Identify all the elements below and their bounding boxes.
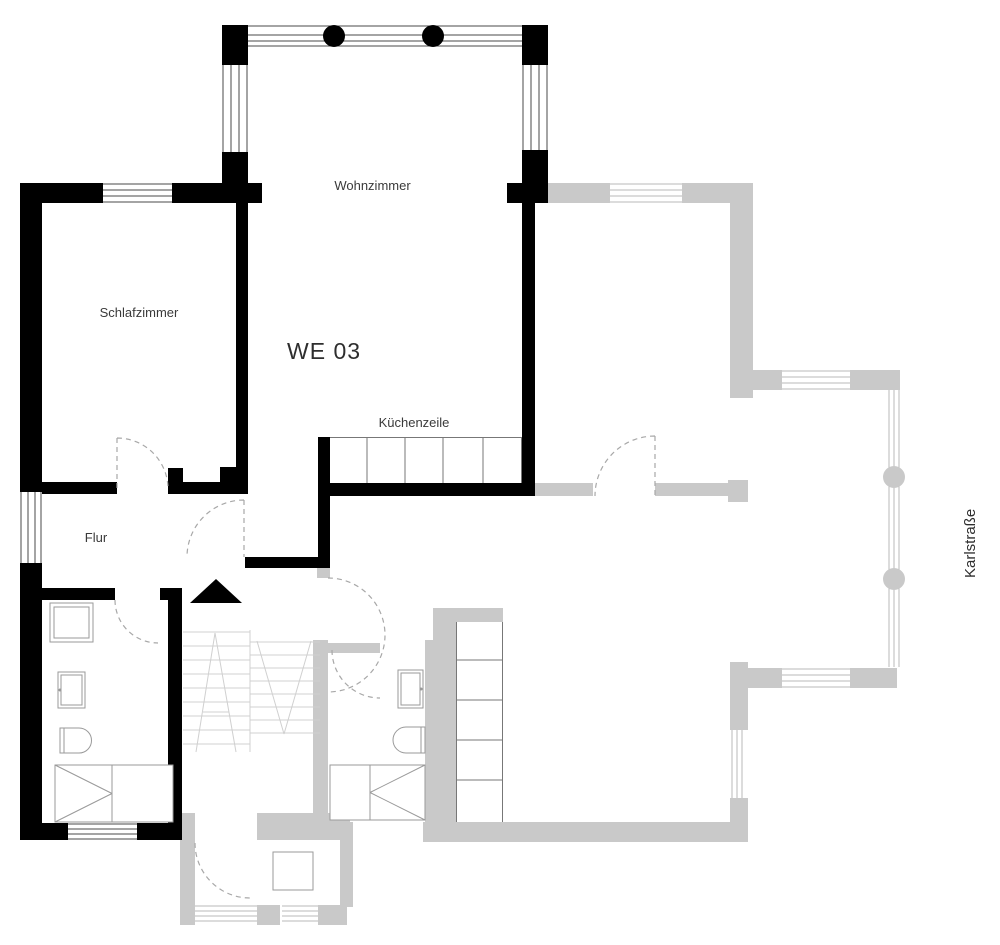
kitchen-counter [330, 438, 522, 484]
floor-plan: Wohnzimmer Schlafzimmer WE 03 Küchenzeil… [0, 0, 1000, 945]
unit-label: WE 03 [287, 339, 361, 364]
sink [58, 672, 85, 708]
toilet [60, 728, 92, 753]
unit-windows [21, 184, 172, 839]
stair-direction-up [196, 633, 236, 752]
unit-walls [20, 25, 548, 840]
column [883, 568, 905, 590]
door-bathroom [115, 600, 158, 643]
room-label-kuechenzeile: Küchenzeile [350, 416, 478, 430]
door-vestibule [195, 843, 250, 898]
neighbor-walls [180, 183, 900, 925]
entrance-arrow-icon [190, 579, 242, 603]
floor-plan-drawing [0, 0, 1000, 945]
door-neighbor-bath [332, 650, 380, 698]
door-neighbor-room [595, 436, 655, 496]
door-stairwell [328, 578, 385, 692]
balcony-column [323, 25, 345, 47]
sink [398, 670, 423, 708]
door-entrance [187, 500, 244, 557]
vestibule-fixture [273, 852, 313, 890]
shower [50, 603, 93, 642]
door-bedroom [117, 438, 168, 489]
street-label: Karlstraße [963, 509, 980, 578]
bathtub [330, 765, 425, 820]
room-label-schlafzimmer: Schlafzimmer [75, 306, 203, 320]
neighbor-kitchen-counter [456, 622, 503, 822]
room-label-wohnzimmer: Wohnzimmer [310, 179, 435, 193]
column [883, 466, 905, 488]
neighbor-windows [195, 184, 899, 921]
balcony-glazing [223, 25, 547, 152]
toilet [393, 727, 425, 753]
balcony-column [422, 25, 444, 47]
room-label-flur: Flur [64, 531, 128, 545]
bathroom-fixtures [50, 603, 173, 822]
staircase [183, 630, 320, 752]
